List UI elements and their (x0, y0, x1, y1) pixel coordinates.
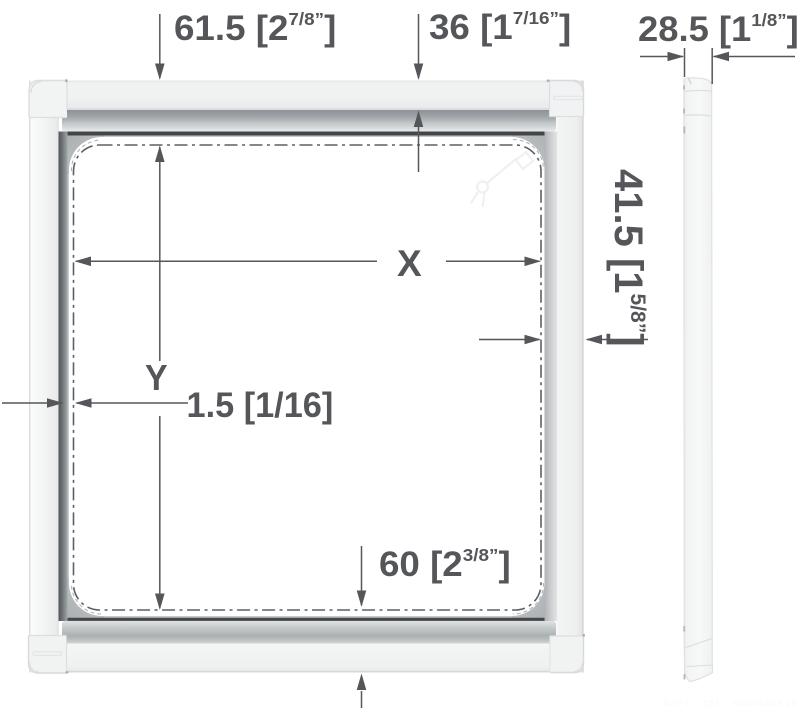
svg-text:1.5 [1/16]: 1.5 [1/16] (187, 387, 334, 425)
svg-text:61.5 [27/8”]: 61.5 [27/8”] (174, 8, 336, 47)
svg-text:41.5 [15/8”]: 41.5 [15/8”] (606, 169, 650, 347)
svg-text:28.5 [11/8”]: 28.5 [11/8”] (638, 9, 799, 49)
svg-text:Y: Y (145, 358, 168, 398)
svg-text:BUY-1 151 8x45x10U8-10: BUY-1 151 8x45x10U8-10 x580UB-x0B1B (663, 699, 800, 708)
svg-text:36 [17/16”]: 36 [17/16”] (429, 7, 571, 46)
svg-text:X: X (397, 243, 422, 284)
